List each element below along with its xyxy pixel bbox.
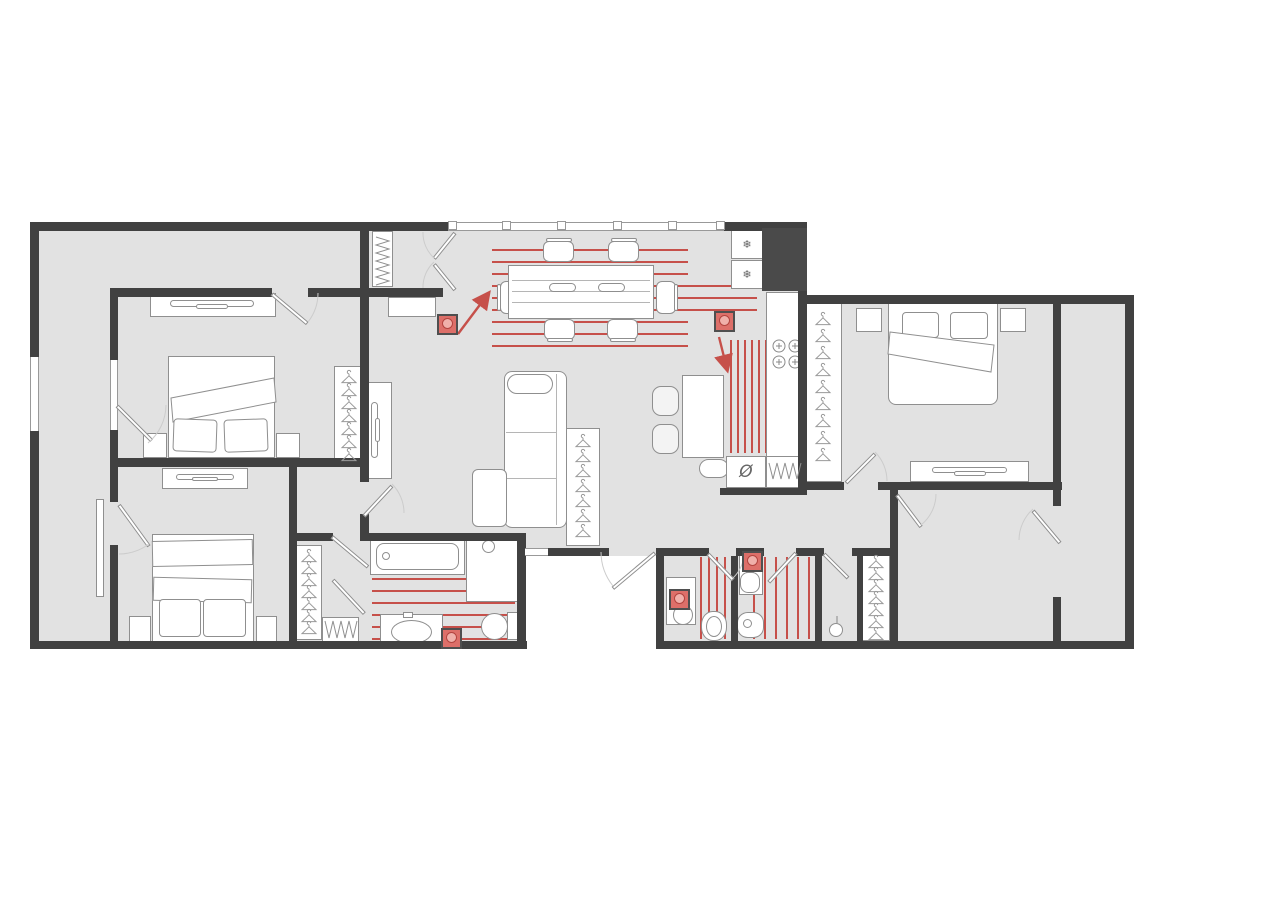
hanger-icon: [814, 432, 832, 445]
thermostat-dial: [747, 555, 758, 566]
window-mullion: [557, 221, 566, 230]
thermostat-dial: [674, 593, 685, 604]
hanger-icon: [574, 525, 592, 538]
window-mullion: [448, 221, 457, 230]
heating-direction-arrow: [719, 337, 727, 369]
hanger-icon: [340, 384, 358, 397]
thermostat-icon: [441, 628, 462, 649]
hanger-icon: [814, 449, 832, 462]
hanger-icon: [574, 435, 592, 448]
overlay-annotations: [0, 0, 1280, 904]
thermostat-icon: [742, 551, 763, 572]
hanger-icon: [340, 436, 358, 449]
hanger-icon: [340, 371, 358, 384]
hanger-icon: [340, 397, 358, 410]
hanger-icon: [814, 415, 832, 428]
hanger-icon: [814, 398, 832, 411]
window-mullion: [668, 221, 677, 230]
thermostat-dial: [719, 315, 730, 326]
hanger-icon: [340, 423, 358, 436]
hanger-icon: [574, 450, 592, 463]
floor-plan: ❄ ❄ Ø: [0, 0, 1280, 904]
thermostat-dial: [446, 632, 457, 643]
thermostat-icon: [669, 589, 690, 610]
dishwasher-coil-zigzag-icon: [769, 462, 803, 480]
hanger-icon: [300, 622, 318, 635]
hanger-icon: [867, 628, 885, 641]
hanger-icon: [574, 480, 592, 493]
entry-closet-rail-zigzag-icon: [375, 237, 390, 285]
hanger-icon: [814, 347, 832, 360]
thermostat-icon: [437, 314, 458, 335]
thermostat-dial: [442, 318, 453, 329]
thermostat-icon: [714, 311, 735, 332]
hanger-icon: [574, 465, 592, 478]
window-mullion: [502, 221, 511, 230]
shoe-rack-zigzag-icon: [325, 620, 357, 639]
hanger-icon: [814, 313, 832, 326]
hanger-icon: [814, 330, 832, 343]
hanger-icon: [574, 495, 592, 508]
heating-direction-arrow: [458, 294, 488, 334]
hanger-icon: [574, 510, 592, 523]
hanger-icon: [814, 364, 832, 377]
hanger-icon: [340, 410, 358, 423]
window-mullion: [716, 221, 725, 230]
hanger-icon: [340, 449, 358, 462]
hanger-icon: [814, 381, 832, 394]
window-mullion: [613, 221, 622, 230]
